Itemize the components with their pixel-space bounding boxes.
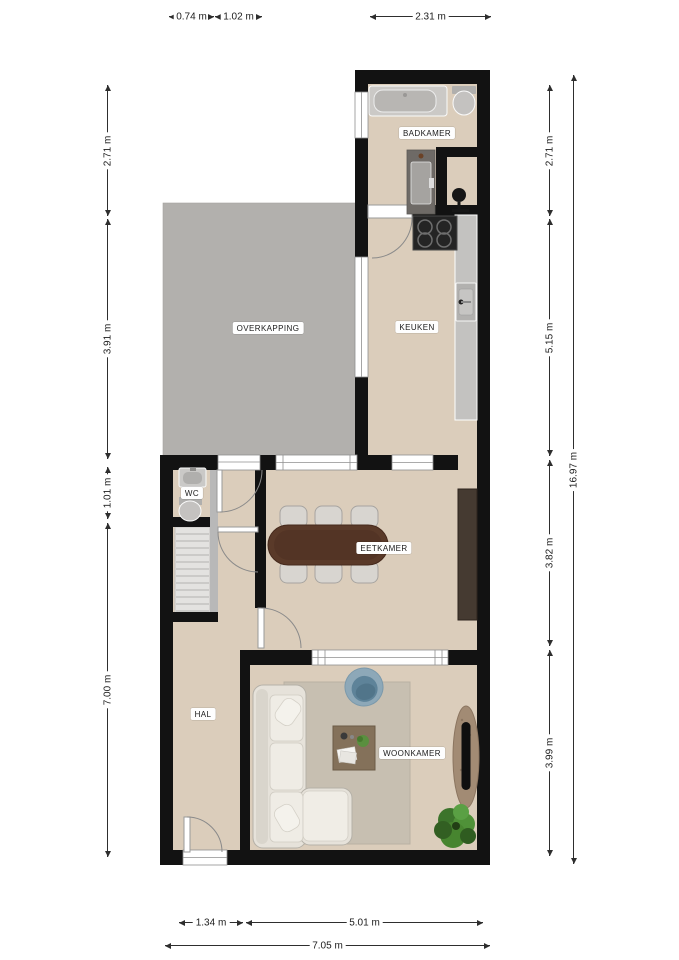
coffee-table [333, 726, 375, 770]
dimension-right-total: 16.97 m [568, 75, 579, 864]
dimension-top-2: 2.31 m [370, 11, 491, 22]
walk-in-shower [407, 150, 435, 214]
stairs [175, 527, 210, 617]
room-label-wc: WC [181, 487, 203, 499]
room-label-keuken: KEUKEN [395, 321, 438, 333]
floor-plan-canvas: BADKAMER OVERKAPPING KEUKEN WC EETKAMER … [0, 0, 679, 960]
room-label-badkamer: BADKAMER [399, 127, 455, 139]
room-label-overkapping: OVERKAPPING [233, 322, 304, 334]
dimension-left-2: 1.01 m [102, 467, 113, 519]
dimension-right-1: 5.15 m [544, 219, 555, 456]
toilet [452, 86, 476, 115]
wc-sink [179, 468, 206, 487]
stove [413, 216, 457, 250]
bathtub [369, 86, 447, 116]
dimension-right-2: 3.82 m [544, 460, 555, 646]
dimension-bottom-total: 7.05 m [165, 940, 490, 951]
dimension-bottom-1: 5.01 m [246, 917, 483, 928]
tv-cabinet [453, 706, 479, 808]
room-label-eetkamer: EETKAMER [356, 542, 411, 554]
kitchen-sink [456, 283, 476, 321]
wc-toilet [179, 497, 202, 521]
dimension-left-0: 2.71 m [102, 85, 113, 216]
dimension-right-3: 3.99 m [544, 650, 555, 856]
dimension-left-3: 7.00 m [102, 523, 113, 857]
dimension-right-0: 2.71 m [544, 85, 555, 216]
cabinet [458, 489, 477, 620]
dimension-left-1: 3.91 m [102, 219, 113, 459]
dimension-top-0: 0.74 m [169, 11, 214, 22]
room-label-woonkamer: WOONKAMER [379, 747, 445, 759]
dimension-top-1: 1.02 m [215, 11, 262, 22]
dimension-bottom-0: 1.34 m [179, 917, 243, 928]
room-label-hal: HAL [191, 708, 216, 720]
